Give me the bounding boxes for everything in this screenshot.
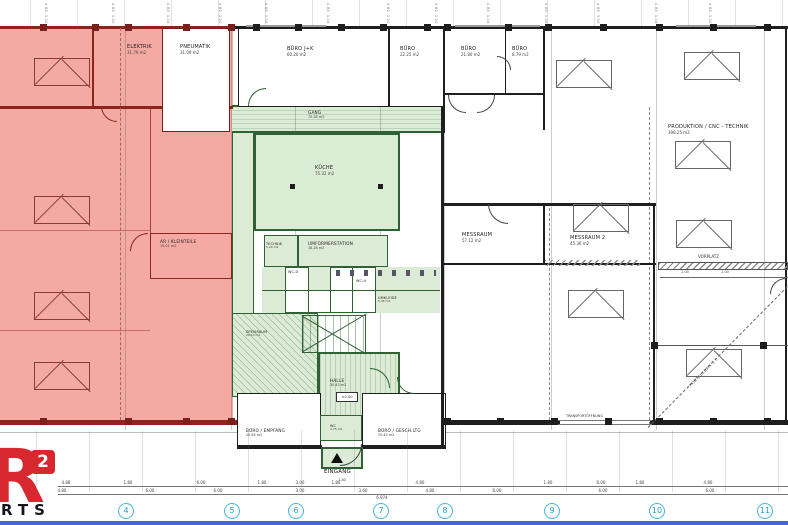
door-arc — [497, 56, 511, 70]
column — [551, 418, 558, 425]
machine-symbol — [675, 141, 731, 169]
stair-diagonal — [303, 314, 367, 352]
column — [600, 24, 607, 31]
vorplatz-strip — [658, 262, 788, 270]
transport-label: TRANSPORTÖFFNUNG — [566, 414, 603, 418]
dim-label: 1.80 — [544, 480, 553, 485]
room-label-kueche: KÜCHE 75.32 m2 — [315, 165, 334, 176]
top-dim-label: 4.80 1.10 — [596, 3, 600, 24]
red-bay-line — [0, 330, 150, 331]
room-name: TRANSPORTÖFFNUNG — [566, 414, 603, 418]
column — [764, 24, 771, 31]
green-left-strip — [232, 133, 254, 313]
dim-label: 6.00 — [214, 488, 223, 493]
wc-cell — [308, 267, 330, 290]
gang-hatch — [232, 107, 442, 133]
dim-label: 6.00 — [706, 488, 715, 493]
column — [424, 24, 431, 31]
door-arc — [770, 278, 786, 294]
dim-label: 3.60 — [359, 488, 368, 493]
machine-symbol — [556, 60, 612, 88]
axis-bubble-7: 7 — [373, 503, 389, 519]
room-area: 45.36 m2 — [570, 241, 605, 246]
machine-symbol — [34, 362, 90, 390]
room-technik — [264, 235, 298, 267]
room-label-buero-3: BÜRO 8.79 m2 — [512, 46, 529, 57]
red-wall-v — [92, 28, 94, 108]
room-label-messraum-2: MESSRAUM 2 45.36 m2 — [570, 235, 605, 246]
right-wall — [785, 28, 787, 422]
column — [40, 24, 47, 31]
dim-label: 1.80 — [258, 480, 267, 485]
dim-label: 2.00 — [681, 270, 689, 274]
door-arc — [488, 204, 508, 224]
column — [444, 24, 451, 31]
axis-bubble-4: 4 — [118, 503, 134, 519]
room-area: 31.09 m2 — [180, 50, 211, 55]
red-wall-v2 — [150, 107, 151, 233]
vorplatz-label: VORPLATZ — [698, 254, 719, 259]
column — [40, 418, 47, 425]
top-tick-lines — [30, 0, 788, 26]
axis-bubble-10: 10 — [649, 503, 665, 519]
top-wall-window — [455, 25, 540, 27]
door-arc — [448, 95, 466, 113]
machine-symbol — [676, 220, 732, 248]
room-area: 30.43 m2 — [330, 383, 346, 387]
room-label-wc-h: WC-H — [356, 279, 366, 283]
zone-boundary-wall — [441, 107, 444, 447]
top-dim-label: 4.80 1.10 — [544, 3, 548, 24]
top-dim-label: 4.80 1.10 — [218, 3, 222, 24]
axis-bubble-8: 8 — [437, 503, 453, 519]
column — [338, 24, 345, 31]
room-label-ar-kleinteile: AR / KLEINTEILE 19.01 m2 — [160, 239, 196, 249]
floor-plan-canvas: 4.80 1.10 4.80 1.10 4.80 1.10 4.80 1.10 … — [0, 0, 788, 525]
top-dim-label: 4.80 1.10 — [166, 3, 170, 24]
logo-text: RTS — [1, 501, 51, 519]
grid-line-11 — [764, 28, 765, 430]
column — [656, 418, 663, 425]
room-label-pneumatik: PNEUMATIK 31.09 m2 — [180, 44, 211, 55]
column — [92, 24, 99, 31]
column — [380, 24, 387, 31]
window-band — [545, 260, 640, 266]
column — [228, 24, 235, 31]
room-label-buero-2: BÜRO 21.80 m2 — [461, 46, 480, 57]
room-label-gang: GANG 70.38 m2 — [308, 110, 324, 120]
room-label-buero-1: BÜRO 22.25 m2 — [400, 46, 419, 57]
top-dim-label: 4.80 1.10 — [44, 3, 48, 24]
top-dim-label: 4.80 1.10 — [326, 3, 330, 24]
axis-bubble-9: 9 — [544, 503, 560, 519]
stair-diagonal — [303, 316, 367, 354]
room-area: 75.32 m2 — [315, 171, 334, 176]
produktion-wall — [653, 203, 655, 425]
dim-label: 1.80 — [124, 480, 133, 485]
dim-label: 6.00 — [197, 480, 206, 485]
axis-bubble-6: 6 — [288, 503, 304, 519]
wc-fixtures — [336, 270, 436, 276]
room-label-messraum-1: MESSRAUM 57.12 m2 — [462, 232, 492, 243]
room-area: 398.25 m2 — [668, 130, 749, 135]
column — [253, 24, 260, 31]
room-area: 8.79 m2 — [512, 52, 529, 57]
dim-label: 6.00 — [493, 488, 502, 493]
bottom-wall-red — [0, 420, 238, 425]
column — [710, 24, 717, 31]
top-dim-label: 4.80 1.10 — [111, 3, 115, 24]
column — [760, 342, 767, 349]
column — [497, 418, 504, 425]
messraum-divider — [543, 203, 545, 265]
column — [444, 418, 451, 425]
dim-line — [58, 494, 788, 495]
axis-bubble-5: 5 — [224, 503, 240, 519]
dim-label: 4.80 — [704, 480, 713, 485]
column — [505, 24, 512, 31]
room-label-elektrik: ELEKTRIK 31.79 m2 — [127, 44, 152, 55]
column — [125, 418, 132, 425]
dim-label: 3.00 — [296, 488, 305, 493]
machine-symbol — [684, 52, 740, 80]
room-area: 57.12 m2 — [462, 238, 492, 243]
room-label-produktion: PRODUKTION / CNC - TECHNIK 398.25 m2 — [668, 124, 749, 135]
dim-label: 1.80 — [636, 480, 645, 485]
room-area: 70.38 m2 — [308, 115, 324, 119]
room-area: 16.28 m2 — [308, 246, 353, 250]
produktion-bay-line — [656, 345, 788, 346]
office-wall-v — [543, 28, 545, 130]
room-name: WC-H — [356, 279, 366, 283]
room-label-buero-jk: BÜRO J+K 60.20 m2 — [287, 46, 314, 57]
room-area: 5.36 m2 — [378, 300, 397, 304]
grid-line-4 — [125, 28, 126, 430]
grid-line-9 — [551, 28, 552, 430]
stairs — [302, 315, 366, 353]
column — [183, 24, 190, 31]
column — [378, 184, 383, 189]
logo-exponent-badge: 2 — [31, 450, 55, 474]
machine-symbol — [568, 290, 624, 318]
room-area: 60.20 m2 — [287, 52, 314, 57]
machine-symbol — [34, 292, 90, 320]
column — [605, 418, 612, 425]
dim-label: 4.80 — [416, 480, 425, 485]
office-wall-v — [443, 28, 445, 133]
room-kueche — [254, 133, 400, 231]
grid-line-10 — [656, 28, 657, 430]
room-label-halle: HALLE 30.43 m2 — [330, 378, 346, 388]
machine-symbol — [573, 204, 629, 232]
machine-symbol — [34, 58, 90, 86]
dim-line — [58, 486, 788, 487]
extension-lines — [36, 430, 788, 492]
room-label-speisraum: SPEISRAUM 20.10 m2 — [246, 330, 267, 338]
column — [295, 24, 302, 31]
expansion-joint-line — [549, 203, 550, 425]
column — [545, 24, 552, 31]
top-dim-label: 4.80 1.10 — [486, 3, 490, 24]
column — [183, 418, 190, 425]
column — [710, 418, 717, 425]
room-label-technik: TECHNIK 5.20 m2 — [266, 242, 282, 250]
column — [228, 418, 235, 425]
dim-label: 6.00 — [146, 488, 155, 493]
dim-label: 6.00 — [597, 480, 606, 485]
top-dim-label: 4.80 1.10 — [264, 3, 268, 24]
dim-label: 4.80 — [426, 488, 435, 493]
level-marker: ±0.00 — [336, 392, 358, 402]
expansion-joint-line — [649, 107, 650, 425]
room-name: VORPLATZ — [698, 254, 719, 259]
column — [764, 418, 771, 425]
room-label-umformerstation: UMFORMERSTATION 16.28 m2 — [308, 241, 353, 251]
room-area: 19.01 m2 — [160, 244, 196, 248]
room-name: WC-D — [288, 270, 298, 274]
dim-label: 3.00 — [296, 480, 305, 485]
room-label-umkleide: UMKLEIDE 5.36 m2 — [378, 296, 397, 304]
door-arc — [477, 95, 495, 113]
column — [656, 24, 663, 31]
machine-symbol — [34, 196, 90, 224]
top-dim-label: 4.80 1.10 — [434, 3, 438, 24]
column — [290, 184, 295, 189]
top-dim-label: 4.80 1.10 — [654, 3, 658, 24]
room-area: 31.79 m2 — [127, 50, 152, 55]
room-buero-1 — [389, 28, 445, 107]
dim-label: 1.80 — [332, 480, 341, 485]
top-dim-label: 4.80 1.10 — [386, 3, 390, 24]
vorplatz-dim-line — [660, 277, 788, 278]
room-area: 22.25 m2 — [400, 52, 419, 57]
wc-wall-h — [262, 290, 440, 291]
red-dashed-joint — [120, 28, 121, 420]
top-dim-label: 4.80 1.10 — [708, 3, 712, 24]
logo: R 2 RTS — [0, 440, 90, 522]
room-area: 21.80 m2 — [461, 52, 480, 57]
axis-bubble-11: 11 — [757, 503, 773, 519]
room-umformerstation — [298, 235, 388, 267]
column — [651, 342, 658, 349]
red-bay-line — [0, 230, 150, 231]
room-area: 20.10 m2 — [246, 334, 267, 338]
dim-label: 6.00 — [599, 488, 608, 493]
portalkran-track-line — [648, 286, 788, 427]
room-area: 5.20 m2 — [266, 246, 282, 250]
dim-total-label: 6.974 — [376, 495, 387, 500]
room-label-wc-d: WC-D — [288, 270, 298, 274]
dim-label: 2.00 — [721, 270, 729, 274]
footer-blue-bar — [0, 521, 788, 525]
column — [125, 24, 132, 31]
